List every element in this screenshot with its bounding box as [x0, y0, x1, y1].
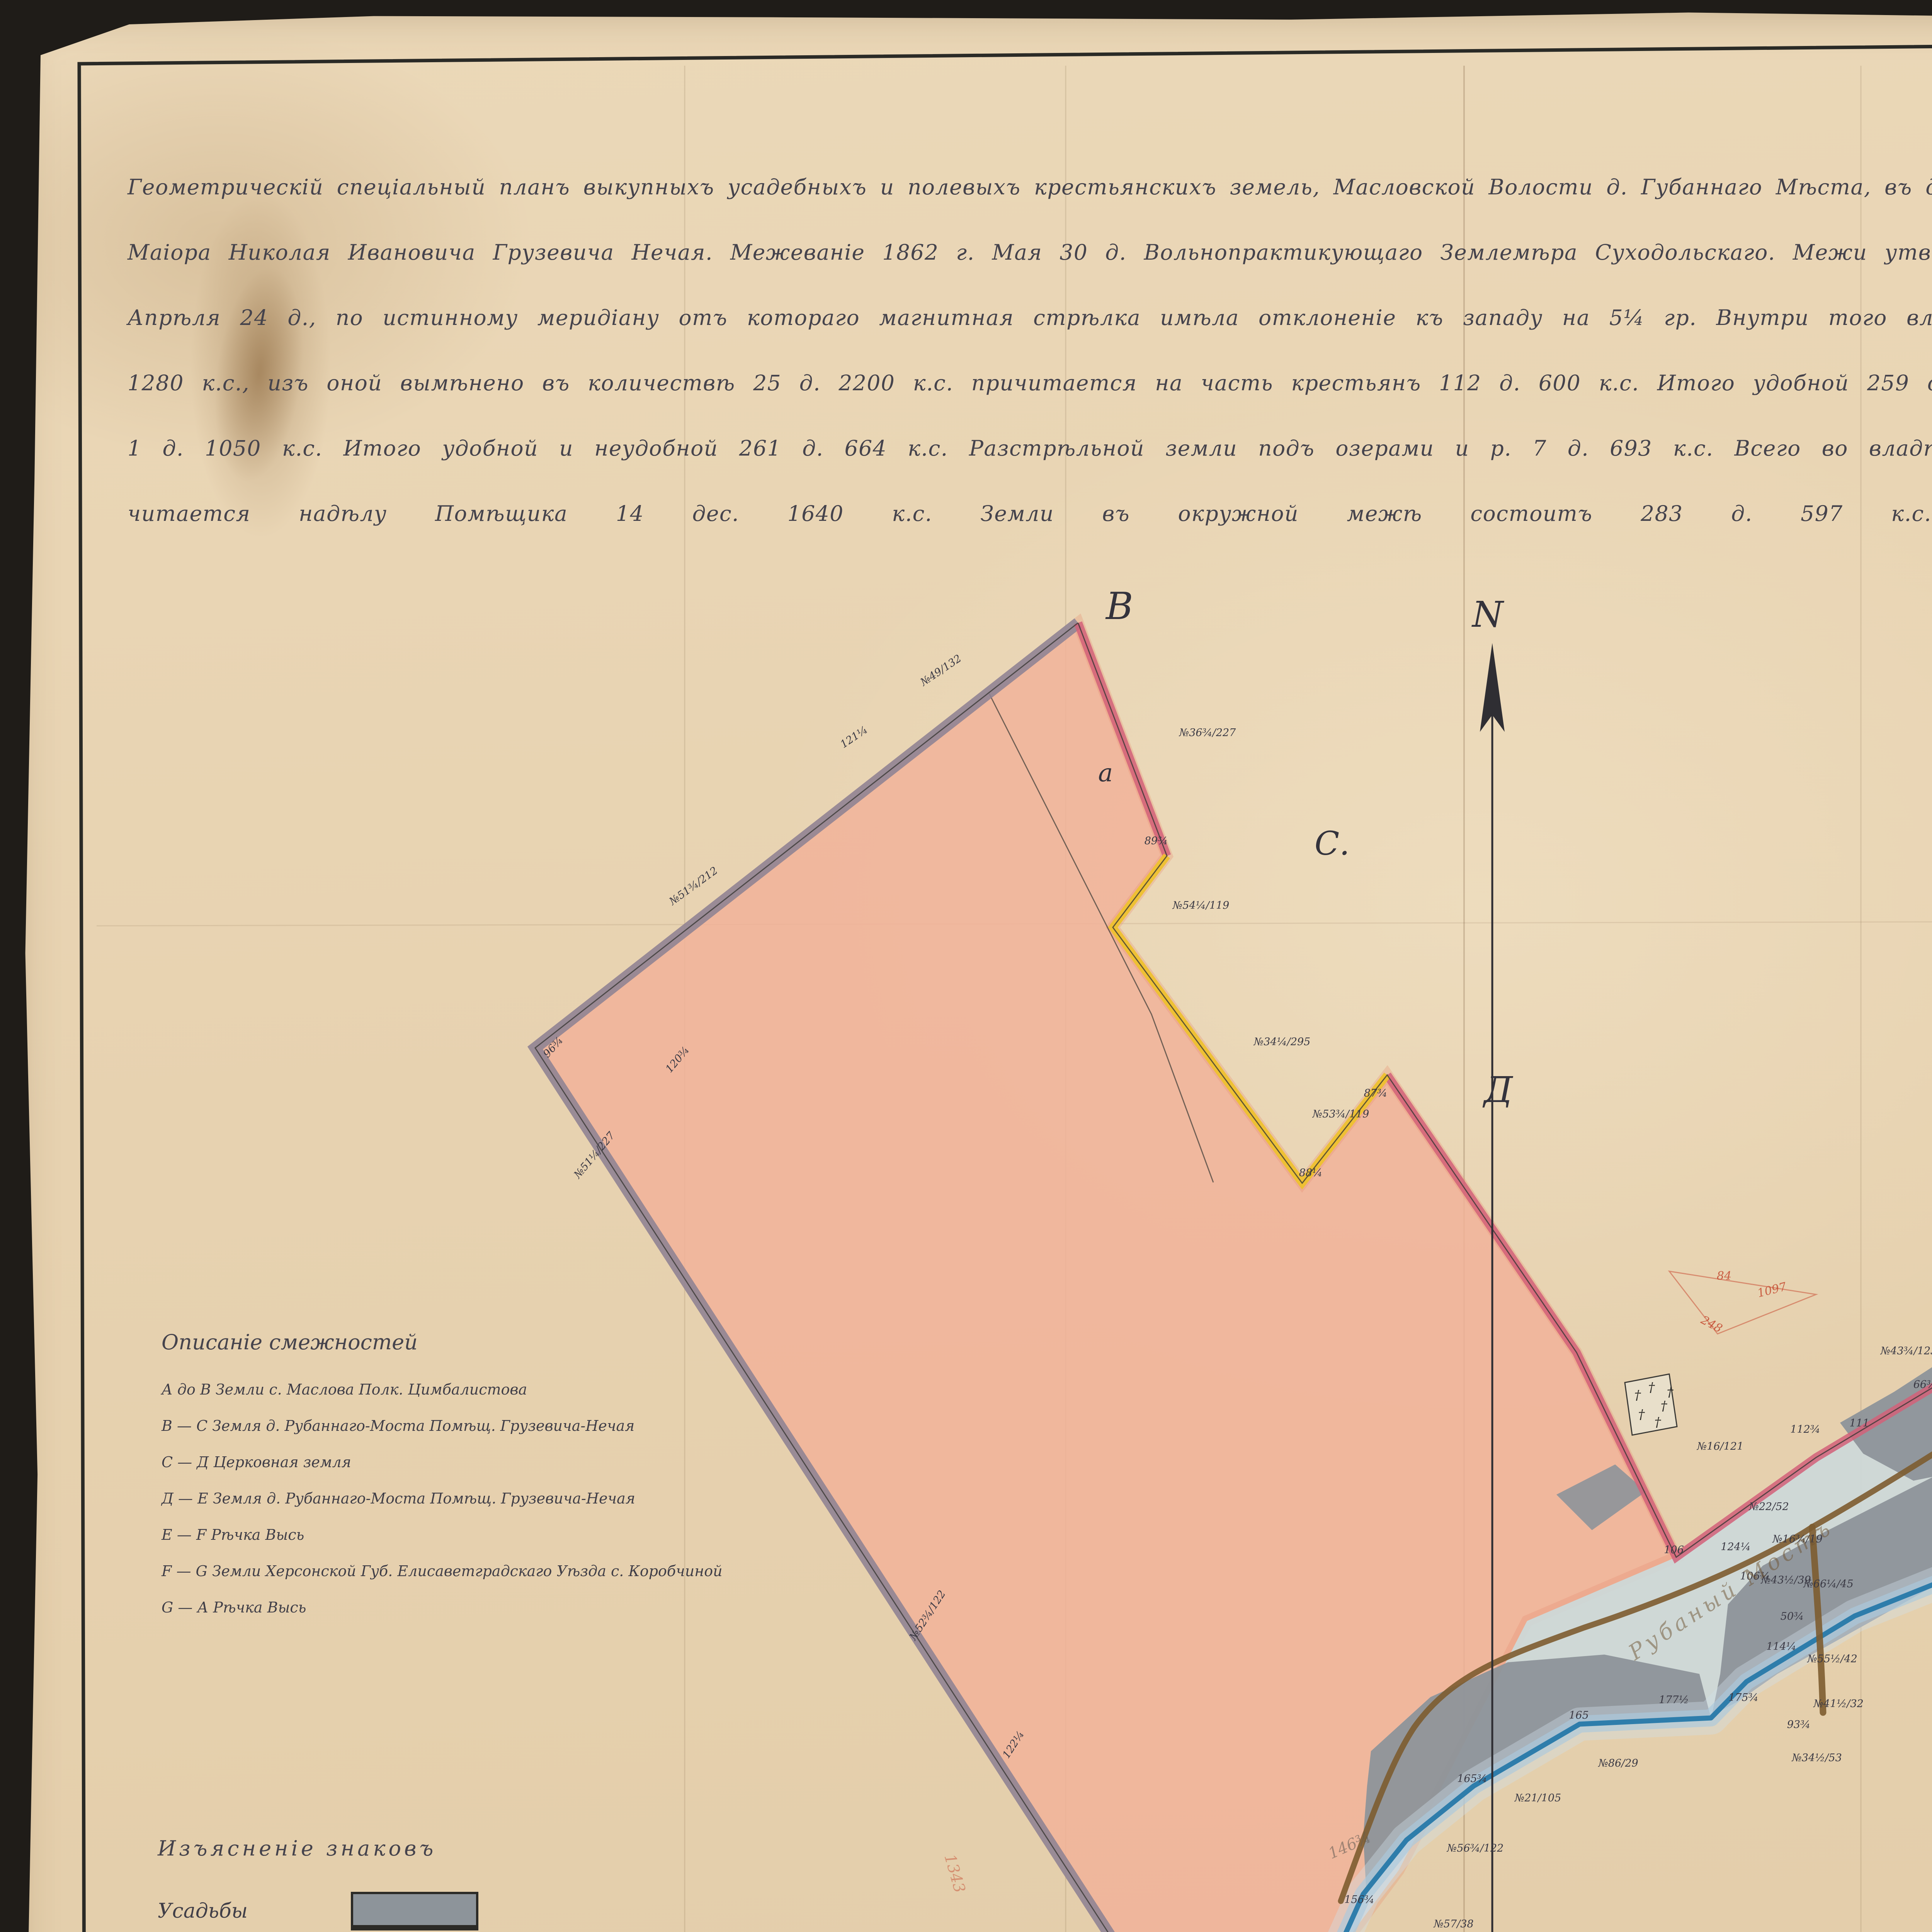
- survey-marker: №43¾/123: [1880, 1345, 1932, 1357]
- adjacency-list: А до В Земли с. Маслова Полк. Цимбалисто…: [162, 1371, 927, 1626]
- survey-marker: №57/38: [1433, 1918, 1473, 1930]
- boundary-point-letter: В: [1105, 585, 1133, 628]
- survey-marker: №86/29: [1598, 1757, 1638, 1769]
- survey-marker: 124¼: [1721, 1541, 1751, 1553]
- survey-marker: 66¾: [1913, 1379, 1932, 1391]
- legend-list: Усадьбы Пашня Выгонъ Кладбище † † † † †: [158, 1888, 583, 1932]
- survey-marker: 112¾: [1790, 1423, 1820, 1435]
- map-annotation: †: [1634, 1388, 1641, 1403]
- survey-marker: №56¾/122: [1447, 1842, 1504, 1854]
- map-annotation: 84: [1717, 1269, 1731, 1283]
- boundary-point-letter: Д: [1482, 1069, 1514, 1111]
- boundary-point-letter: а: [1098, 759, 1113, 787]
- red-survey-triangle: [1669, 1271, 1816, 1334]
- map-annotation: 1097: [1756, 1280, 1788, 1300]
- survey-marker: №49/132: [918, 652, 964, 689]
- adjacency-title: Описаніе смежностей: [162, 1330, 927, 1354]
- legend-title: Изъясненіе знаковъ: [158, 1836, 583, 1861]
- survey-marker: №66¼/45: [1803, 1578, 1854, 1590]
- document-scan: NSАВС.ДЕFGа№49/132121¼№51¾/212120¾96¾№51…: [0, 0, 1932, 1932]
- adjacency-item: Д — Е Земля д. Рубаннаго-Моста Помѣщ. Гр…: [162, 1480, 927, 1517]
- boundary-point-letter: N: [1471, 594, 1505, 635]
- adjacency-item: G — А Рѣчка Высь: [162, 1589, 927, 1626]
- legend-swatch: [351, 1892, 478, 1930]
- survey-marker: №21/105: [1514, 1792, 1561, 1804]
- survey-marker: №16/121: [1697, 1440, 1744, 1452]
- survey-marker: 175¾: [1728, 1692, 1759, 1704]
- survey-marker: №34½/53: [1791, 1752, 1842, 1764]
- map-annotation: 1343: [940, 1852, 968, 1895]
- survey-marker: 88¼: [1299, 1167, 1323, 1179]
- survey-marker: №36¾/227: [1179, 727, 1236, 739]
- survey-marker: №53¾/119: [1312, 1108, 1369, 1120]
- title-line: Маіора Николая Ивановича Грузевича Нечая…: [128, 220, 1932, 285]
- survey-marker: 89¾: [1145, 835, 1168, 847]
- adjacency-item: С — Д Церковная земля: [162, 1444, 927, 1480]
- survey-marker: 87¾: [1364, 1087, 1388, 1099]
- survey-marker: 114¼: [1766, 1641, 1796, 1653]
- survey-marker: №54¼/119: [1172, 900, 1230, 912]
- title-line: Геометрическій спеціальный планъ выкупны…: [128, 155, 1932, 220]
- map-annotation: †: [1638, 1407, 1645, 1422]
- survey-marker: №51¾/212: [667, 864, 720, 908]
- survey-marker: №55½/42: [1807, 1653, 1857, 1665]
- survey-marker: 111: [1849, 1417, 1869, 1429]
- title-block: Геометрическій спеціальный планъ выкупны…: [128, 155, 1932, 546]
- map-legend: Изъясненіе знаковъ Усадьбы Пашня Выгонъ: [158, 1836, 583, 1932]
- legend-item-label: Усадьбы: [158, 1900, 351, 1923]
- adjacency-description: Описаніе смежностей А до В Земли с. Масл…: [162, 1330, 927, 1626]
- title-line: Апрѣля 24 д., по истинному меридіану отъ…: [128, 285, 1932, 350]
- title-line: 1280 к.с., изъ оной вымѣнено въ количест…: [128, 350, 1932, 416]
- survey-marker: 156¾: [1344, 1894, 1374, 1906]
- title-line: 1 д. 1050 к.с. Итого удобной и неудобной…: [128, 416, 1932, 481]
- survey-marker: 93¾: [1787, 1719, 1811, 1731]
- adjacency-item: F — G Земли Херсонской Губ. Елисаветград…: [162, 1553, 927, 1589]
- legend-item: Усадьбы: [158, 1888, 583, 1932]
- map-annotation: †: [1667, 1384, 1674, 1400]
- boundary-point-letter: С.: [1315, 825, 1350, 862]
- survey-marker: 165: [1569, 1709, 1589, 1721]
- adjacency-item: Е — F Рѣчка Высь: [162, 1517, 927, 1553]
- survey-marker: 121¼: [838, 724, 870, 750]
- map-annotation: †: [1648, 1380, 1655, 1395]
- survey-marker: №34¼/295: [1253, 1036, 1311, 1048]
- survey-marker: 50¾: [1781, 1611, 1804, 1622]
- survey-marker: 106: [1664, 1544, 1684, 1556]
- survey-marker: 177½: [1659, 1694, 1689, 1706]
- map-annotation: †: [1655, 1415, 1662, 1430]
- survey-marker: №22/52: [1748, 1501, 1789, 1513]
- survey-marker: №41½/32: [1813, 1698, 1864, 1710]
- title-line: читается надѣлу Помѣщика 14 дес. 1640 к.…: [128, 481, 1932, 546]
- adjacency-item: А до В Земли с. Маслова Полк. Цимбалисто…: [162, 1371, 927, 1408]
- survey-marker: 165¾: [1457, 1773, 1487, 1785]
- map-annotation: †: [1661, 1398, 1668, 1414]
- adjacency-item: В — С Земля д. Рубаннаго-Моста Помѣщ. Гр…: [162, 1408, 927, 1444]
